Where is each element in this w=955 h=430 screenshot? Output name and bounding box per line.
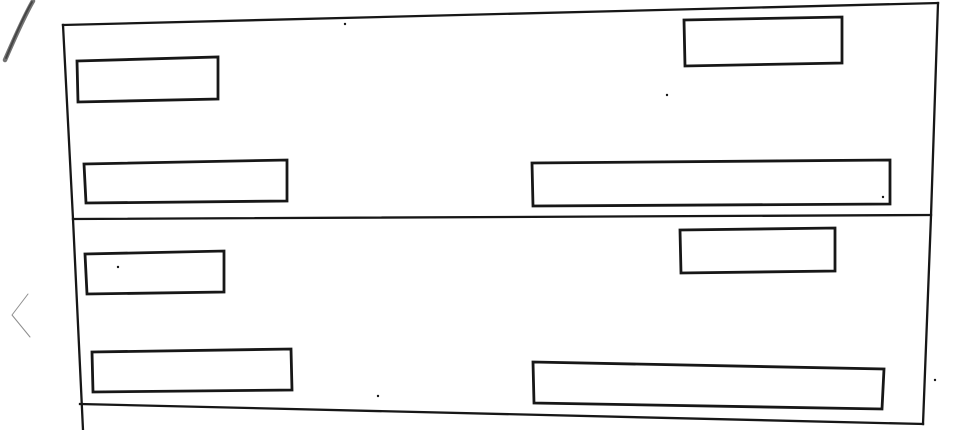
outer-border-right [923, 3, 938, 424]
outer-border-top [63, 3, 938, 25]
scan-speck [117, 266, 119, 268]
panel2-long-field-bottom-left [92, 349, 292, 392]
scan-speck [377, 395, 379, 397]
panel2-long-field-bottom-right [533, 362, 884, 409]
scan-viewer [0, 0, 955, 430]
panel1-small-field-top-left [77, 57, 218, 102]
outer-border-left [63, 25, 83, 430]
scan-speck [344, 23, 346, 25]
panel1-long-field-bottom-left [84, 160, 287, 203]
panel-divider-line [73, 215, 931, 219]
panel1-field-top-right [684, 17, 842, 66]
scan-speck [666, 94, 668, 96]
panel1-long-field-bottom-right [532, 160, 890, 206]
scanned-document [0, 0, 955, 430]
panel2-field-top-right [680, 228, 835, 273]
panel2-small-field-top-left [85, 251, 224, 294]
scan-speck [882, 196, 884, 198]
scan-speck [934, 379, 936, 381]
